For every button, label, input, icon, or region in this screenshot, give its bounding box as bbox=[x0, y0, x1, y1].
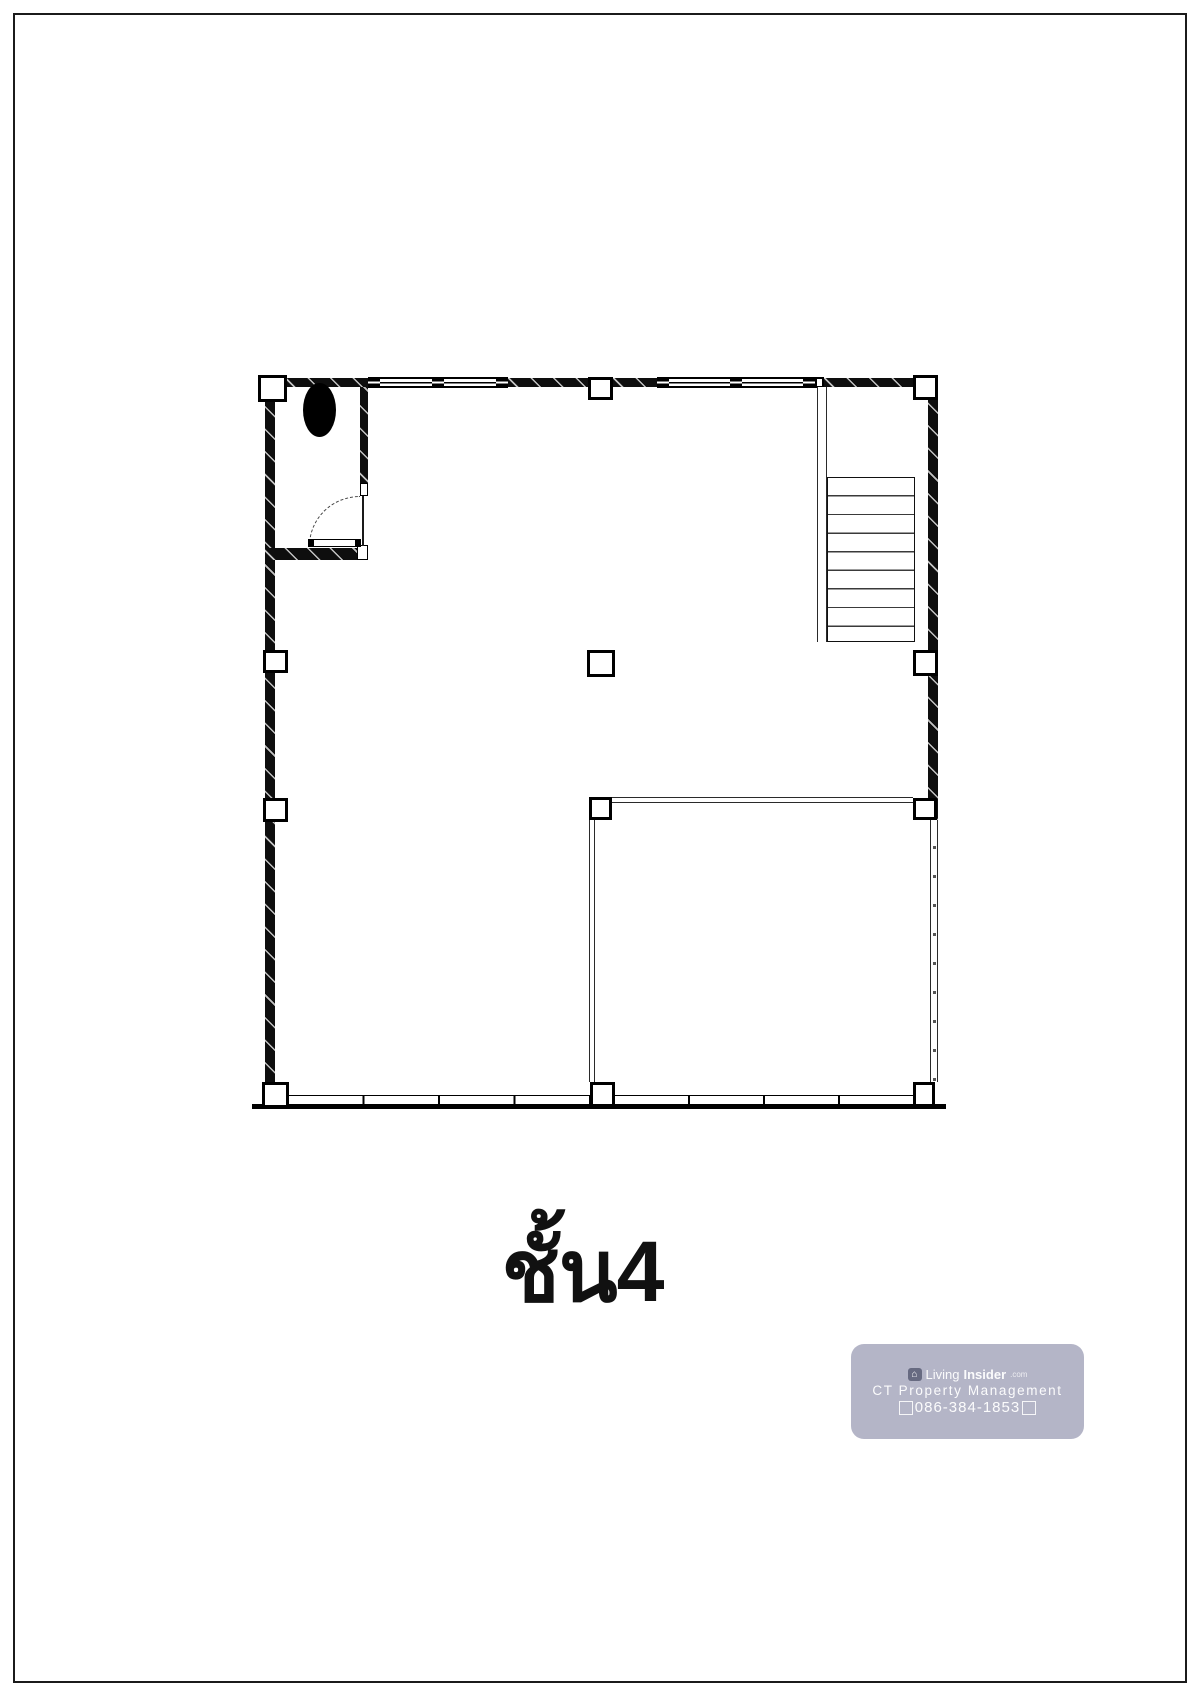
stair-enclosure-wall bbox=[817, 387, 827, 642]
watermark-phone: 086-384-1853 bbox=[915, 1399, 1020, 1416]
floor-plan bbox=[258, 375, 940, 1109]
glazing-ticks bbox=[933, 820, 937, 1082]
livinginsider-logo-icon: ⌂ bbox=[908, 1368, 922, 1381]
outer-wall-left bbox=[265, 402, 275, 1095]
outer-wall-right bbox=[928, 400, 938, 820]
door-jamb bbox=[360, 483, 368, 496]
window-band-top-1 bbox=[368, 377, 508, 388]
curtain-wall-right bbox=[930, 820, 938, 1082]
brand-text-light: Living bbox=[926, 1367, 960, 1382]
column bbox=[587, 650, 615, 677]
column bbox=[913, 798, 937, 820]
column bbox=[913, 650, 938, 676]
toilet-wall-right bbox=[360, 387, 368, 483]
outer-wall-top-segment bbox=[824, 378, 915, 387]
column bbox=[258, 375, 287, 402]
outer-wall-top-segment bbox=[613, 378, 657, 387]
toilet-wall-bottom bbox=[265, 548, 357, 560]
box-glyph-icon bbox=[899, 1401, 913, 1415]
column bbox=[589, 797, 612, 820]
brand-text-suffix: .com bbox=[1010, 1370, 1027, 1379]
box-glyph-icon bbox=[1022, 1401, 1036, 1415]
door-jamb bbox=[357, 545, 368, 560]
column bbox=[263, 798, 288, 822]
watermark-phone-line: 086-384-1853 bbox=[851, 1399, 1084, 1416]
floor-label: ชั้น4 bbox=[0, 1208, 1165, 1337]
inner-room-wall-top bbox=[612, 797, 913, 803]
stair-treads bbox=[827, 477, 915, 642]
watermark-brand: ⌂ LivingInsider.com bbox=[851, 1367, 1084, 1382]
door-leaf bbox=[362, 496, 364, 546]
column bbox=[913, 1082, 935, 1107]
outer-wall-top-segment bbox=[508, 378, 590, 387]
column bbox=[263, 650, 288, 673]
column bbox=[262, 1082, 289, 1108]
watermark-company: CT Property Management bbox=[851, 1383, 1084, 1398]
column bbox=[588, 377, 613, 400]
column bbox=[913, 375, 938, 400]
brand-text-bold: Insider bbox=[964, 1367, 1007, 1382]
toilet-fixture-icon bbox=[303, 383, 336, 437]
window-band-top-2 bbox=[657, 377, 815, 388]
watermark-box: ⌂ LivingInsider.com CT Property Manageme… bbox=[851, 1344, 1084, 1439]
inner-room-wall-left bbox=[589, 820, 595, 1082]
door-panel-open bbox=[308, 539, 361, 547]
column bbox=[590, 1082, 615, 1107]
